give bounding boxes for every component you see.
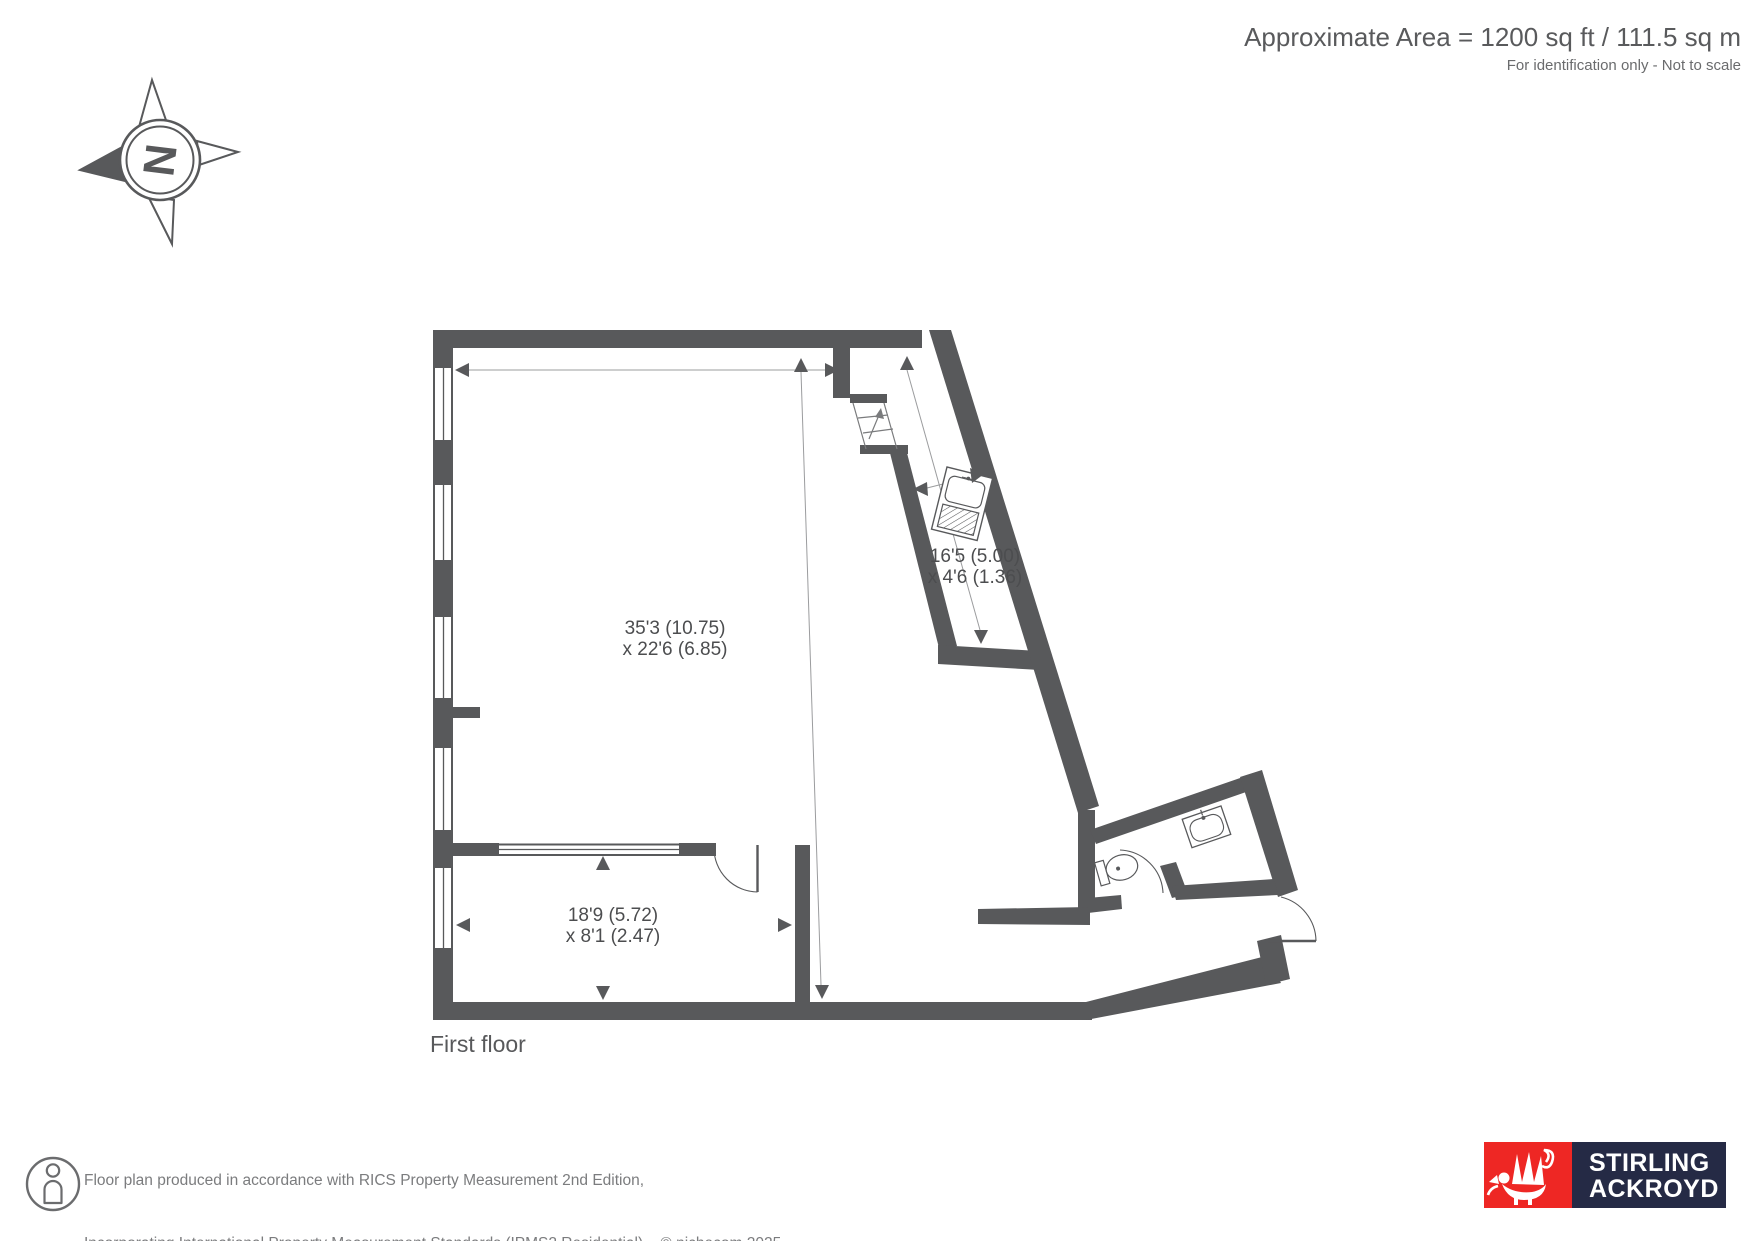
room-dimension: x 8'1 (2.47) bbox=[566, 926, 660, 947]
window bbox=[433, 617, 453, 698]
window bbox=[433, 485, 453, 560]
brand-name: STIRLING ACKROYD bbox=[1572, 1142, 1726, 1208]
stairs bbox=[853, 403, 897, 449]
arrow-left-icon bbox=[455, 363, 469, 377]
griffin-emblem-icon bbox=[1484, 1142, 1572, 1208]
measurement-arrows bbox=[455, 356, 988, 1000]
arrow-down-icon bbox=[596, 986, 610, 1000]
interior-window bbox=[498, 843, 680, 856]
arrow-left-icon bbox=[456, 918, 470, 932]
person-icon bbox=[27, 1158, 79, 1210]
toilet-icon bbox=[1094, 851, 1140, 886]
entry-door-arc bbox=[1281, 897, 1316, 941]
kitchen-label: 16'5 (5.00) x 4'6 (1.36) bbox=[928, 546, 1022, 588]
window bbox=[433, 748, 453, 830]
stirling-ackroyd-logo: STIRLING ACKROYD bbox=[1484, 1142, 1726, 1208]
lower-room-label: 18'9 (5.72) x 8'1 (2.47) bbox=[566, 905, 660, 947]
room-dimension: 35'3 (10.75) bbox=[622, 618, 727, 639]
arrow-down-icon bbox=[815, 985, 829, 999]
brand-line: STIRLING bbox=[1589, 1150, 1726, 1176]
floor-title: First floor bbox=[430, 1031, 526, 1058]
main-room-label: 35'3 (10.75) x 22'6 (6.85) bbox=[622, 618, 727, 660]
room-dimension: 18'9 (5.72) bbox=[566, 905, 660, 926]
door-arc bbox=[714, 848, 758, 892]
arrow-down-icon bbox=[974, 630, 988, 644]
arrow-up-icon bbox=[794, 358, 808, 372]
brand-line: ACKROYD bbox=[1589, 1176, 1726, 1202]
arrow-right-icon bbox=[778, 918, 792, 932]
compass-icon: N bbox=[80, 80, 238, 244]
walls bbox=[433, 330, 1298, 1020]
compass-north-label: N bbox=[134, 141, 187, 179]
room-dimension: x 22'6 (6.85) bbox=[622, 639, 727, 660]
floorplan-page: Approximate Area = 1200 sq ft / 111.5 sq… bbox=[0, 0, 1755, 1241]
arrow-up-icon bbox=[900, 356, 914, 370]
disclaimer-line: Floor plan produced in accordance with R… bbox=[84, 1170, 1131, 1191]
arrow-up-icon bbox=[596, 856, 610, 870]
griffin-icon bbox=[1484, 1142, 1572, 1208]
disclaimer-block: Floor plan produced in accordance with R… bbox=[84, 1128, 1131, 1241]
disclaimer-line: Incorporating International Property Mea… bbox=[84, 1233, 1131, 1241]
room-dimension: x 4'6 (1.36) bbox=[928, 567, 1022, 588]
room-dimension: 16'5 (5.00) bbox=[928, 546, 1022, 567]
kitchen-sink-unit bbox=[932, 467, 993, 540]
floor-plan-drawing: N bbox=[0, 0, 1755, 1241]
window bbox=[433, 868, 453, 948]
window bbox=[433, 368, 453, 440]
